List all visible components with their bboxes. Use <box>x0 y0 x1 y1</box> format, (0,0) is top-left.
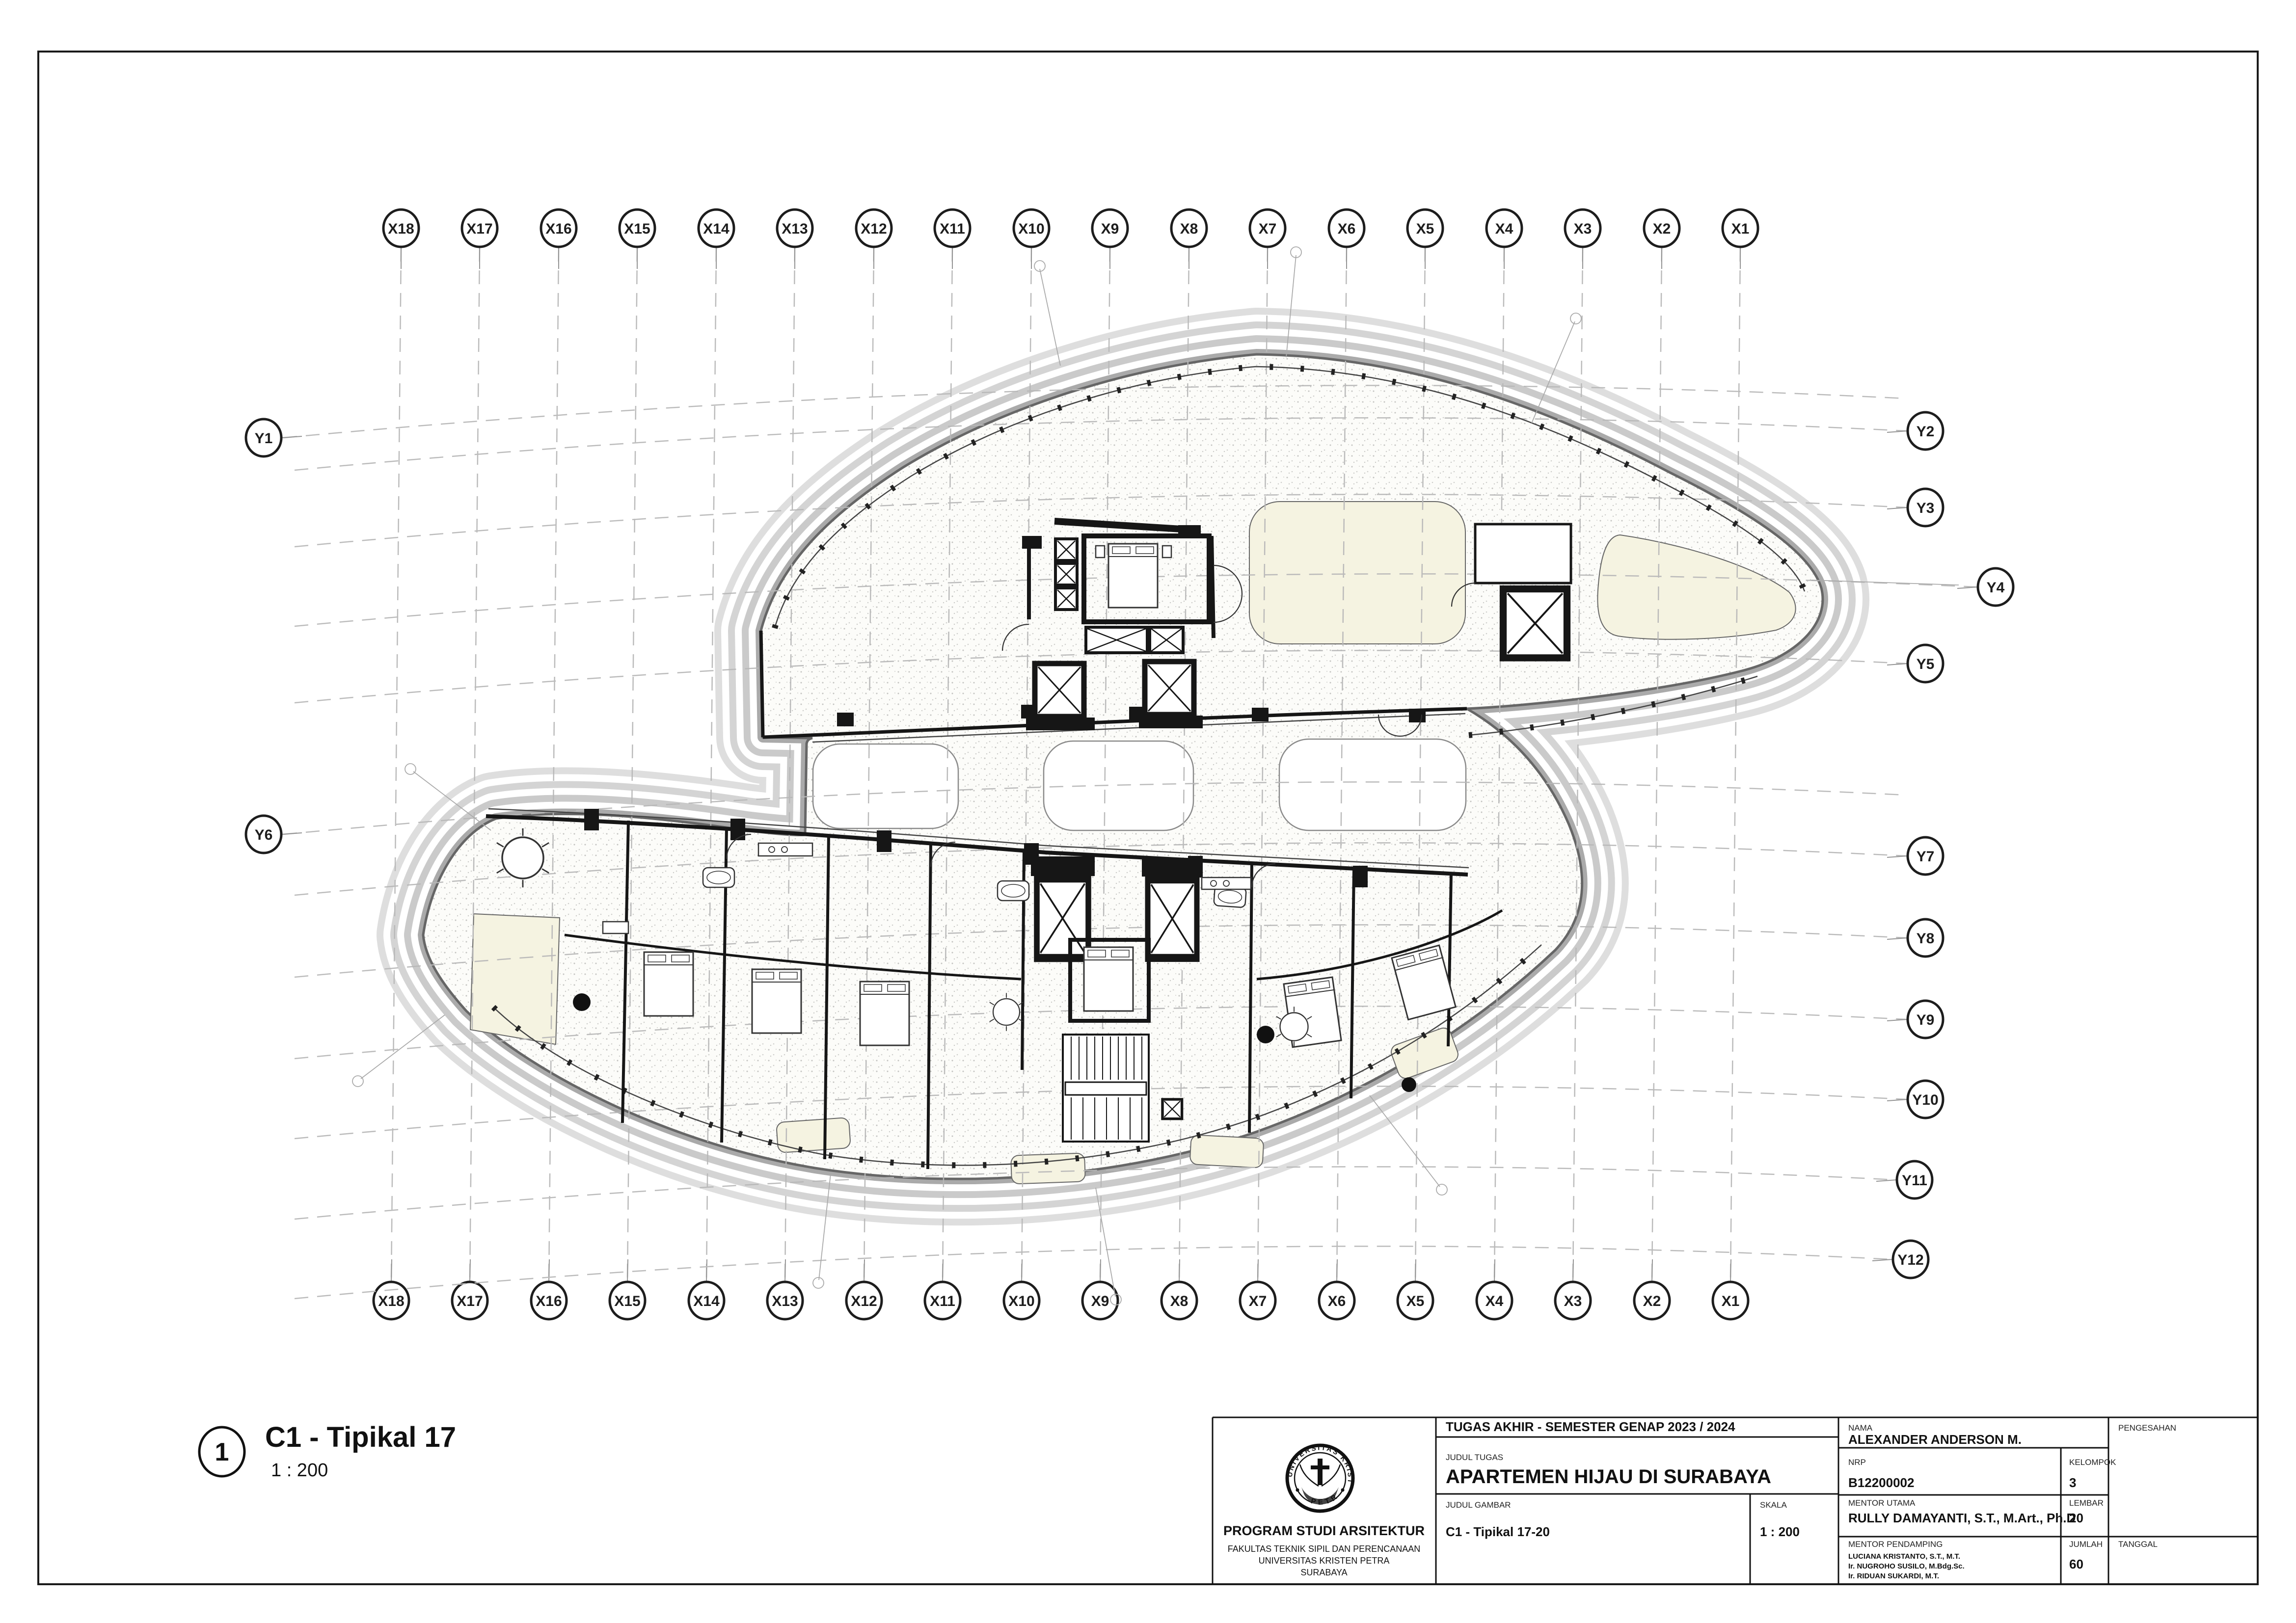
judul-gambar-label: JUDUL GAMBAR <box>1446 1500 1511 1510</box>
grid-bubble-X9: X9 <box>1082 1282 1118 1319</box>
svg-text:X9: X9 <box>1091 1293 1109 1309</box>
title-block: TUGAS AKHIR - SEMESTER GENAP 2023 / 2024… <box>1213 1417 2258 1584</box>
svg-text:X17: X17 <box>466 221 492 237</box>
grid-bubble-X12: X12 <box>856 210 891 247</box>
university-seal: UNIVERSITAS KRISTEN PETRA <box>1286 1443 1355 1511</box>
elevator-shaft <box>1148 879 1197 958</box>
grid-bubble-X11: X11 <box>925 1282 960 1319</box>
grid-bubble-X15: X15 <box>610 1282 645 1319</box>
grid-bubble-X9: X9 <box>1092 210 1128 247</box>
svg-text:X10: X10 <box>1008 1293 1034 1309</box>
grid-bubble-X12: X12 <box>846 1282 882 1319</box>
grid-bubble-X14: X14 <box>689 1282 724 1319</box>
grid-bubble-Y2: Y2 <box>1908 412 1943 450</box>
elevator-shaft <box>1035 664 1084 717</box>
grid-bubble-X1: X1 <box>1723 210 1758 247</box>
grid-bubble-X3: X3 <box>1565 210 1600 247</box>
grid-bubble-Y6: Y6 <box>246 816 281 853</box>
svg-text:X12: X12 <box>851 1293 877 1309</box>
floor-plan-canvas: X18X18X17X17X16X16X15X15X14X14X13X13X12X… <box>0 0 2296 1623</box>
grid-bubble-X13: X13 <box>777 210 812 247</box>
grid-bubble-X11: X11 <box>935 210 970 247</box>
kelompok-label: KELOMPOK <box>2069 1458 2116 1467</box>
svg-text:X14: X14 <box>693 1293 720 1309</box>
bed <box>1108 544 1158 608</box>
jumlah-label: JUMLAH <box>2069 1540 2103 1549</box>
nrp-label: NRP <box>1848 1458 1866 1467</box>
grid-bubble-X15: X15 <box>620 210 655 247</box>
mentor-2: Ir. NUGROHO SUSILO, M.Bdg.Sc. <box>1848 1562 1965 1570</box>
grid-bubble-X6: X6 <box>1329 210 1364 247</box>
grid-bubble-X10: X10 <box>1004 1282 1039 1319</box>
grid-bubble-X17: X17 <box>462 210 497 247</box>
grid-bubble-X17: X17 <box>452 1282 487 1319</box>
grid-bubble-Y1: Y1 <box>246 419 281 456</box>
svg-text:X17: X17 <box>457 1293 483 1309</box>
grid-bubble-Y8: Y8 <box>1908 919 1943 957</box>
svg-text:X18: X18 <box>378 1293 404 1309</box>
grid-bubble-X8: X8 <box>1162 1282 1197 1319</box>
grid-bubble-X16: X16 <box>531 1282 567 1319</box>
institution-block: PROGRAM STUDI ARSITEKTUR FAKULTAS TEKNIK… <box>1223 1523 1425 1577</box>
grid-bubble-X18: X18 <box>383 210 419 247</box>
mentor-utama-label: MENTOR UTAMA <box>1848 1498 1916 1508</box>
svg-text:Y11: Y11 <box>1902 1172 1927 1189</box>
grid-bubble-X2: X2 <box>1644 210 1679 247</box>
grid-bubble-X7: X7 <box>1240 1282 1275 1319</box>
svg-text:X16: X16 <box>545 221 571 237</box>
svg-text:Y1: Y1 <box>255 430 273 447</box>
elevator-shaft <box>1037 878 1088 958</box>
svg-text:X3: X3 <box>1564 1293 1582 1309</box>
stair <box>1063 1035 1149 1142</box>
mentor-pendamping-label: MENTOR PENDAMPING <box>1848 1540 1943 1549</box>
grid-bubble-X5: X5 <box>1407 210 1443 247</box>
judul-tugas: APARTEMEN HIJAU DI SURABAYA <box>1446 1466 1771 1488</box>
grid-bubble-X1: X1 <box>1713 1282 1748 1319</box>
grid-bubble-X4: X4 <box>1486 210 1522 247</box>
header: TUGAS AKHIR - SEMESTER GENAP 2023 / 2024 <box>1446 1419 1735 1434</box>
svg-text:X6: X6 <box>1328 1293 1346 1309</box>
svg-text:X5: X5 <box>1406 1293 1425 1309</box>
nama-label: NAMA <box>1848 1423 1873 1433</box>
svg-text:X6: X6 <box>1338 221 1356 237</box>
roof-garden-large <box>1249 502 1465 644</box>
grid-bubble-Y12: Y12 <box>1893 1241 1928 1278</box>
program-studi: PROGRAM STUDI ARSITEKTUR <box>1223 1523 1425 1538</box>
svg-text:X13: X13 <box>782 221 808 237</box>
kelompok: 3 <box>2069 1475 2076 1490</box>
svg-text:Y3: Y3 <box>1917 500 1935 516</box>
grid-bubble-X4: X4 <box>1477 1282 1512 1319</box>
svg-text:X18: X18 <box>388 221 414 237</box>
grid-bubble-Y3: Y3 <box>1908 489 1943 526</box>
lembar: 20 <box>2069 1511 2083 1525</box>
svg-text:X4: X4 <box>1486 1293 1504 1309</box>
nama: ALEXANDER ANDERSON M. <box>1848 1432 2022 1447</box>
grid-bubble-Y5: Y5 <box>1908 645 1943 682</box>
grid-bubble-Y7: Y7 <box>1908 837 1943 875</box>
drawing-title: C1 - Tipikal 17 <box>265 1421 456 1453</box>
svg-text:X13: X13 <box>772 1293 798 1309</box>
svg-text:Y6: Y6 <box>255 827 273 843</box>
svg-text:X2: X2 <box>1653 221 1671 237</box>
svg-text:Y4: Y4 <box>1987 580 2005 596</box>
mentor-3: Ir. RIDUAN SUKARDI, M.T. <box>1848 1572 1939 1580</box>
svg-text:X10: X10 <box>1018 221 1044 237</box>
grid-bubble-X14: X14 <box>699 210 734 247</box>
svg-text:Y10: Y10 <box>1912 1092 1938 1108</box>
pengesahan-label: PENGESAHAN <box>2118 1423 2176 1433</box>
skala: 1 : 200 <box>1760 1524 1800 1539</box>
drawing-sheet: X18X18X17X17X16X16X15X15X14X14X13X13X12X… <box>0 0 2296 1623</box>
svg-text:X1: X1 <box>1722 1293 1740 1309</box>
tanggal-label: TANGGAL <box>2118 1540 2158 1549</box>
svg-text:X3: X3 <box>1574 221 1592 237</box>
balcony-pad <box>1190 1135 1264 1168</box>
svg-text:X16: X16 <box>536 1293 562 1309</box>
svg-text:Y7: Y7 <box>1917 849 1935 865</box>
column-dot <box>573 993 591 1011</box>
svg-text:Y2: Y2 <box>1917 424 1935 440</box>
skala-label: SKALA <box>1760 1500 1787 1510</box>
fakultas: FAKULTAS TEKNIK SIPIL DAN PERENCANAAN <box>1228 1544 1420 1554</box>
view-title: 1 C1 - Tipikal 17 1 : 200 <box>199 1421 456 1481</box>
grid-bubble-X16: X16 <box>541 210 576 247</box>
grid-bubble-X18: X18 <box>374 1282 409 1319</box>
grid-bubble-Y9: Y9 <box>1908 1001 1943 1038</box>
grid-bubble-X3: X3 <box>1555 1282 1591 1319</box>
title-block-data: NAMA ALEXANDER ANDERSON M. NRP B12200002… <box>1848 1423 2176 1580</box>
grid-bubble-X10: X10 <box>1014 210 1049 247</box>
courtyard-voids <box>813 739 1466 830</box>
cross-icon <box>1318 1459 1323 1485</box>
svg-text:Y8: Y8 <box>1917 931 1935 947</box>
grid-bubble-Y10: Y10 <box>1908 1081 1943 1118</box>
drawing-scale: 1 : 200 <box>271 1460 328 1481</box>
svg-text:X15: X15 <box>624 221 650 237</box>
balcony-pad <box>776 1117 851 1153</box>
grid-bubble-Y4: Y4 <box>1978 568 2013 606</box>
svg-text:X14: X14 <box>703 221 729 237</box>
svg-text:X8: X8 <box>1180 221 1198 237</box>
judul-gambar: C1 - Tipikal 17-20 <box>1446 1524 1550 1539</box>
column-dot <box>1402 1077 1416 1092</box>
svg-text:X7: X7 <box>1259 221 1277 237</box>
grid-bubble-X6: X6 <box>1319 1282 1354 1319</box>
svg-text:Y12: Y12 <box>1897 1252 1923 1268</box>
svg-text:X5: X5 <box>1416 221 1434 237</box>
nrp: B12200002 <box>1848 1475 1914 1490</box>
jumlah: 60 <box>2069 1557 2083 1571</box>
elevator-shaft <box>1145 662 1194 715</box>
kota: SURABAYA <box>1300 1568 1347 1577</box>
view-number: 1 <box>215 1438 229 1466</box>
grid-bubble-X5: X5 <box>1398 1282 1433 1319</box>
balcony-left <box>470 914 560 1044</box>
svg-text:Y5: Y5 <box>1917 656 1935 672</box>
svg-text:X7: X7 <box>1249 1293 1267 1309</box>
grid-bubble-X2: X2 <box>1634 1282 1670 1319</box>
svg-text:X15: X15 <box>614 1293 640 1309</box>
judul-tugas-label: JUDUL TUGAS <box>1446 1453 1503 1462</box>
grid-bubble-X13: X13 <box>767 1282 803 1319</box>
grid-bubble-Y11: Y11 <box>1897 1161 1932 1198</box>
svg-text:X11: X11 <box>940 221 965 237</box>
column-dot <box>1257 1026 1274 1043</box>
svg-text:X9: X9 <box>1101 221 1119 237</box>
grid-bubble-X7: X7 <box>1250 210 1285 247</box>
universitas: UNIVERSITAS KRISTEN PETRA <box>1259 1556 1390 1566</box>
svg-text:X2: X2 <box>1643 1293 1661 1309</box>
bed <box>1084 947 1133 1011</box>
svg-text:Y9: Y9 <box>1917 1012 1935 1028</box>
stair-shaft <box>1503 589 1567 658</box>
svg-text:X12: X12 <box>861 221 887 237</box>
mentor-1: LUCIANA KRISTANTO, S.T., M.T. <box>1848 1552 1960 1561</box>
svg-text:X4: X4 <box>1495 221 1513 237</box>
svg-text:X8: X8 <box>1170 1293 1189 1309</box>
lembar-label: LEMBAR <box>2069 1498 2104 1508</box>
svg-text:X11: X11 <box>930 1293 955 1309</box>
mentor-utama: RULLY DAMAYANTI, S.T., M.Art., Ph.D <box>1848 1511 2076 1525</box>
grid-bubble-X8: X8 <box>1171 210 1207 247</box>
svg-text:X1: X1 <box>1731 221 1750 237</box>
